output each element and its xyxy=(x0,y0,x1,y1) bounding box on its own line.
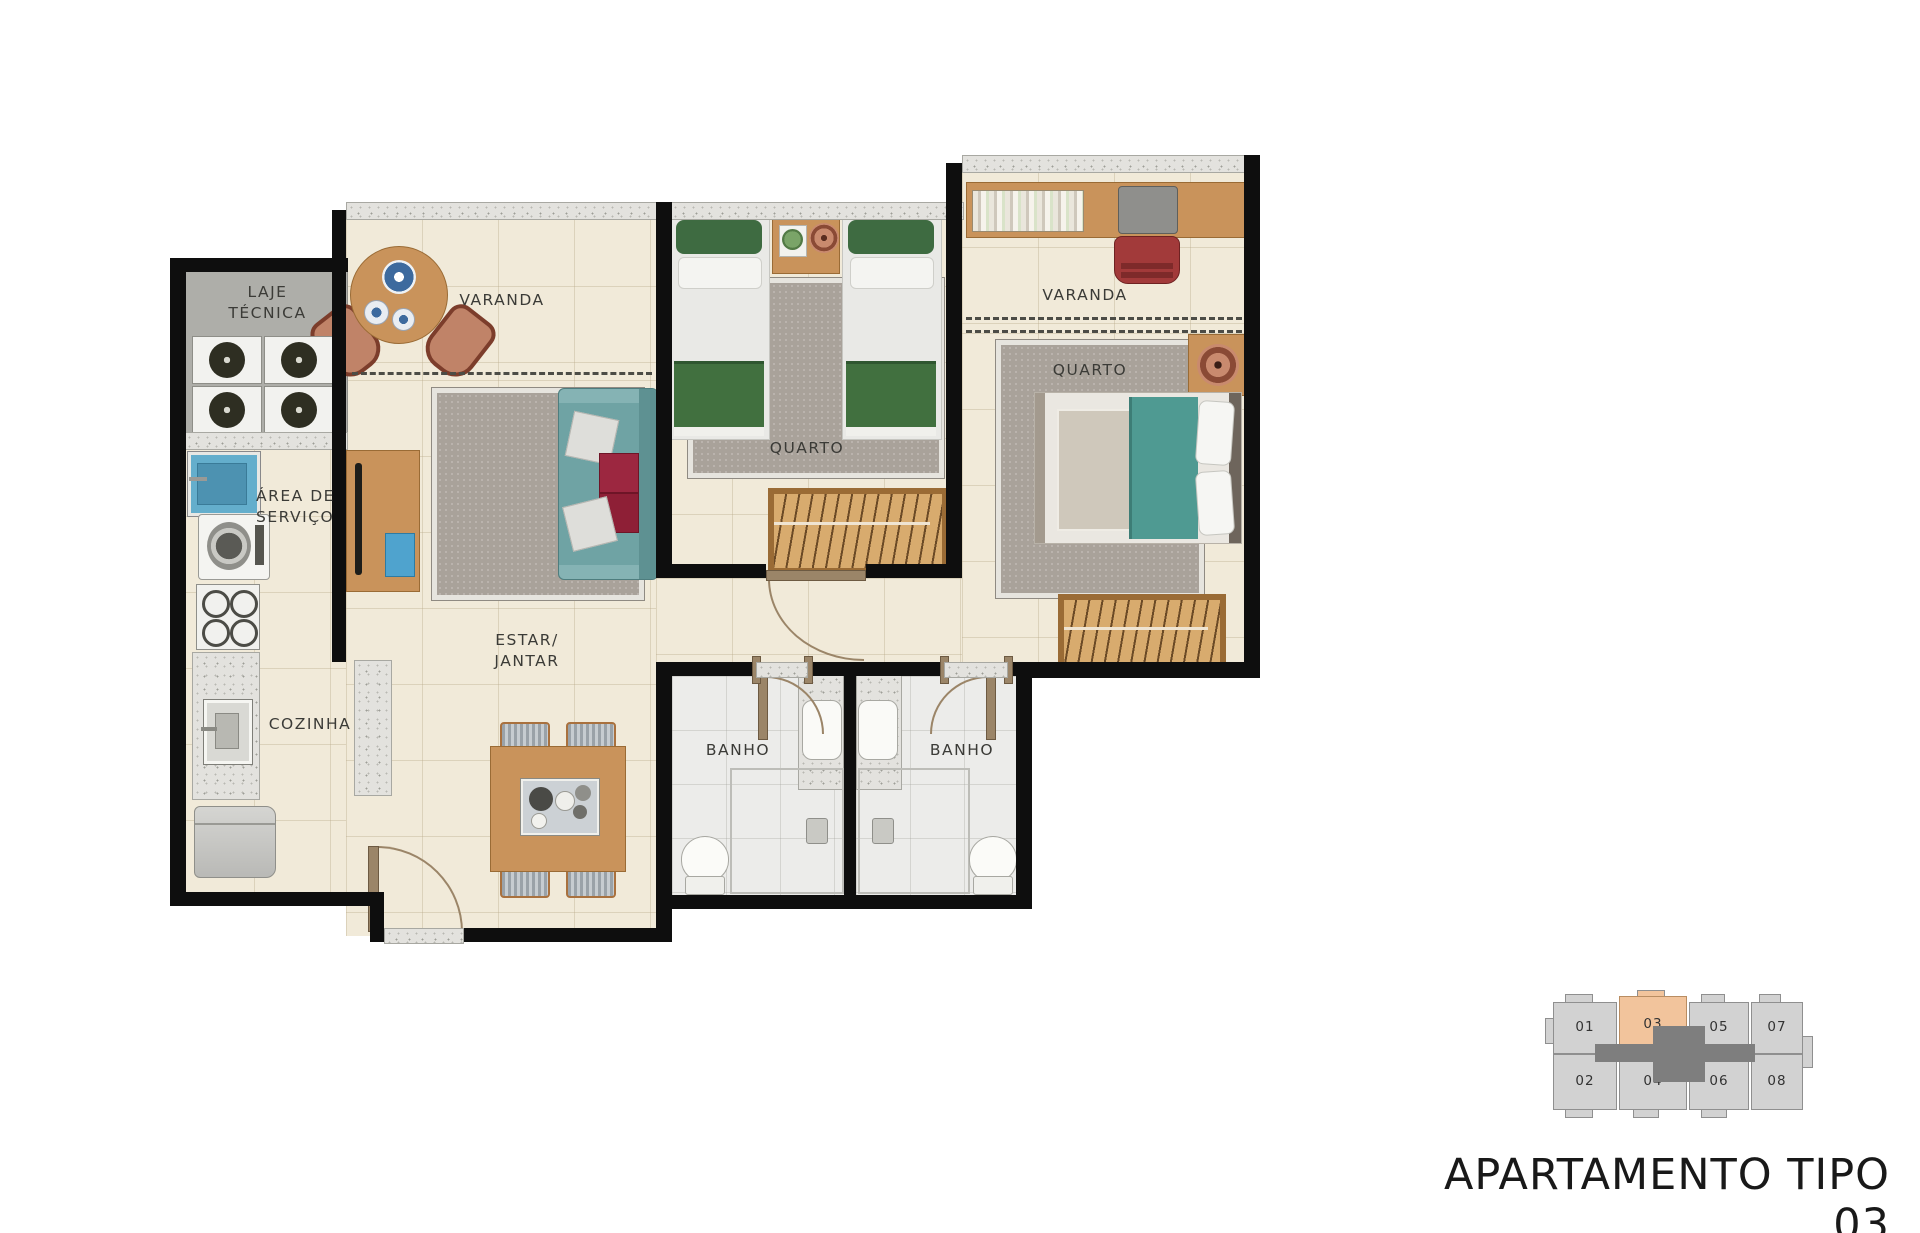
laptop xyxy=(1118,186,1178,234)
table-plate-2 xyxy=(392,308,415,331)
area-servico-label: ÁREA DESERVIÇO xyxy=(218,486,381,528)
varanda-left-label: VARANDA xyxy=(437,290,567,311)
single-bed-1 xyxy=(670,214,770,440)
banho1-label: BANHO xyxy=(673,740,803,761)
wall-quarto1-left xyxy=(656,202,672,578)
quarto1-label: QUARTO xyxy=(742,438,872,459)
double-bed xyxy=(1034,392,1242,544)
dining-table xyxy=(490,746,626,872)
keyplan-core-block xyxy=(1653,1026,1705,1082)
ac-unit-2 xyxy=(264,336,334,384)
wall-quarto1-right xyxy=(946,163,962,578)
banho2-label: BANHO xyxy=(897,740,1027,761)
keyplan-unit-07: 07 xyxy=(1751,1002,1803,1054)
building-keyplan: 01 03 05 07 02 04 06 08 xyxy=(1545,992,1811,1118)
wall-kitchen-divider xyxy=(332,210,346,662)
sofa xyxy=(558,388,658,580)
banho2-threshold xyxy=(944,662,1008,678)
parapet-varanda-left xyxy=(346,202,964,220)
laje-granite-strip xyxy=(184,432,348,450)
desk-books xyxy=(972,190,1084,232)
page-title: APARTAMENTO TIPO 03 xyxy=(1380,1150,1890,1233)
banho1-toilet xyxy=(680,836,728,894)
wall-banho-divider xyxy=(844,662,856,909)
quarto2-nightstand xyxy=(1188,334,1248,396)
refrigerator xyxy=(194,806,276,878)
banho2-door-leaf xyxy=(986,676,996,740)
keyplan-unit-08: 08 xyxy=(1751,1054,1803,1110)
quarto1-wardrobe xyxy=(768,488,948,574)
banho2-shower-head xyxy=(872,818,894,844)
parapet-varanda-right xyxy=(962,155,1246,173)
wall-banhos-top-a xyxy=(656,662,756,676)
estar-jantar-label: ESTAR/JANTAR xyxy=(462,630,592,672)
single-bed-2 xyxy=(842,214,942,440)
ac-unit-1 xyxy=(192,336,262,384)
laje-tecnica-label: LAJETÉCNICA xyxy=(205,282,330,324)
wall-banhos-top-b xyxy=(806,662,944,676)
table-centerpiece xyxy=(382,260,416,294)
banho2-toilet xyxy=(968,836,1016,894)
wall-top-left-column xyxy=(170,258,348,272)
wall-right-outer xyxy=(1244,155,1260,678)
varanda-right-label: VARANDA xyxy=(1020,285,1150,306)
banho1-shower-head xyxy=(806,818,828,844)
wall-right-bottom xyxy=(1016,662,1260,678)
entry-threshold xyxy=(384,928,464,944)
table-plate-1 xyxy=(364,300,389,325)
wall-quarto1-bottom-b xyxy=(866,564,962,578)
stove-cooktop xyxy=(196,584,260,650)
banho2-sink xyxy=(858,700,898,760)
wall-estar-banho-connector xyxy=(656,895,672,942)
ac-unit-4 xyxy=(264,386,334,434)
decor-bowl-icon xyxy=(809,223,839,253)
quarto1-door-leaf xyxy=(766,570,866,581)
varanda-right-slider-a xyxy=(966,317,1242,320)
wall-banhos-bottom xyxy=(656,895,1032,909)
quarto1-nightstand xyxy=(772,214,840,274)
varanda-left-slider xyxy=(352,372,652,375)
varanda-right-slider-b xyxy=(966,330,1242,333)
wall-banho1-left xyxy=(656,662,672,909)
quarto2-label: QUARTO xyxy=(1025,360,1155,381)
wall-left-outer xyxy=(170,258,186,906)
desk-chair xyxy=(1114,236,1180,284)
floorplan-page: LAJETÉCNICA ÁREA DESERVIÇO COZINHA VARAN… xyxy=(0,0,1920,1233)
banho1-door-leaf xyxy=(758,676,768,740)
banho1-threshold xyxy=(756,662,808,678)
ac-unit-3 xyxy=(192,386,262,434)
wall-left-column-bottom xyxy=(170,892,384,906)
wall-quarto1-bottom-a xyxy=(656,564,766,578)
kitchen-sink xyxy=(204,700,252,764)
keyplan-unit-02: 02 xyxy=(1553,1054,1617,1110)
wall-banho2-right xyxy=(1016,662,1032,909)
cozinha-label: COZINHA xyxy=(250,714,370,735)
copper-lamp-icon xyxy=(1197,344,1239,386)
